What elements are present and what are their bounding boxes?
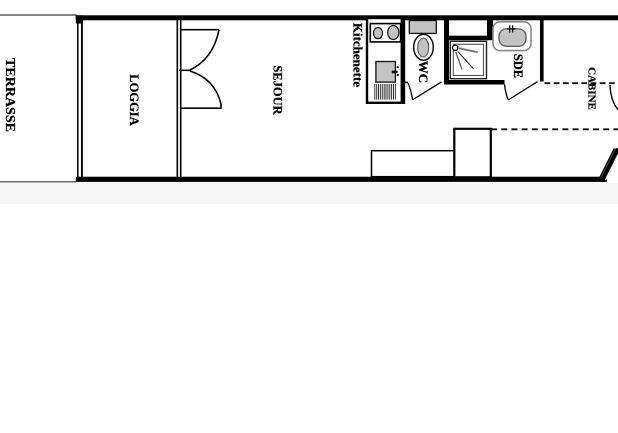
svg-text:SDE: SDE: [511, 54, 525, 78]
svg-text:SEJOUR: SEJOUR: [271, 65, 285, 115]
svg-text:LOGGIA: LOGGIA: [127, 74, 141, 125]
svg-text:WC: WC: [416, 61, 431, 83]
svg-text:CABINE: CABINE: [586, 67, 598, 110]
svg-text:TERRASSE: TERRASSE: [2, 58, 17, 132]
svg-text:Kitchenette: Kitchenette: [351, 23, 366, 87]
